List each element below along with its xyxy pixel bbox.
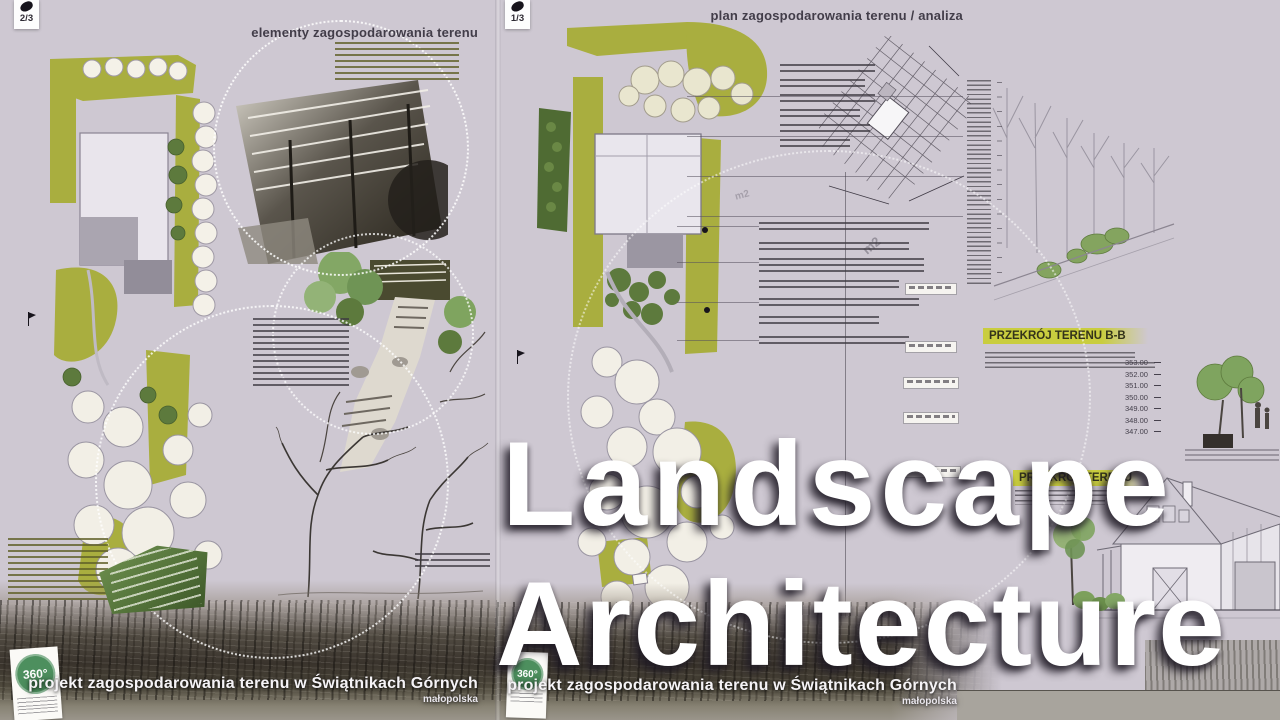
- bushes-sketch: [1072, 572, 1127, 614]
- plan-marker-flag: [517, 350, 518, 364]
- page-marker: 1/3: [511, 14, 524, 24]
- pavement-photo: [957, 690, 1280, 720]
- right-board: m2 m2 PRZEKRÓJ TERENU B-B 353.00 352.00 …: [497, 0, 1280, 720]
- logo-caption-lines: [18, 707, 58, 715]
- elevation-value: 352.00: [1125, 370, 1148, 379]
- page-marker-tab: 1/3: [505, 0, 530, 29]
- left-board: 360° projekt zagospodarowania terenu w Ś…: [0, 0, 497, 720]
- leaf-icon: [19, 0, 34, 13]
- board-caption-region: małopolska: [902, 696, 957, 707]
- annotation-text-block: [335, 42, 459, 82]
- elevation-value: 353.00: [1125, 358, 1148, 367]
- plan-marker-flag: [28, 312, 29, 326]
- elevation-value: 349.00: [1125, 404, 1148, 413]
- board-caption: projekt zagospodarowania terenu w Świątn…: [28, 675, 478, 693]
- board-title: elementy zagospodarowania terenu: [251, 25, 478, 40]
- elevation-value: 351.00: [1125, 381, 1148, 390]
- elevation-value: 348.00: [1125, 416, 1148, 425]
- board-title: plan zagospodarowania terenu / analiza: [711, 8, 964, 23]
- logo-caption-lines: [17, 696, 58, 708]
- dotted-highlight-circle: [567, 150, 1091, 644]
- annotation-text-block: [8, 538, 108, 602]
- leaf-icon: [510, 0, 525, 13]
- board-caption-region: małopolska: [423, 694, 478, 705]
- board-caption: projekt zagospodarowania terenu w Świątn…: [507, 677, 957, 695]
- page-marker-tab: 2/3: [14, 0, 39, 29]
- section-elevation-scale: 353.00 352.00 351.00 350.00 349.00 348.0…: [1125, 357, 1161, 438]
- page-marker: 2/3: [20, 14, 33, 24]
- elevation-value: 347.00: [1125, 427, 1148, 436]
- planter-trees-sketch: [1185, 350, 1279, 462]
- elevation-value: 350.00: [1125, 393, 1148, 402]
- video-frame: 360° projekt zagospodarowania terenu w Ś…: [0, 0, 1280, 720]
- board-divider: [495, 0, 501, 720]
